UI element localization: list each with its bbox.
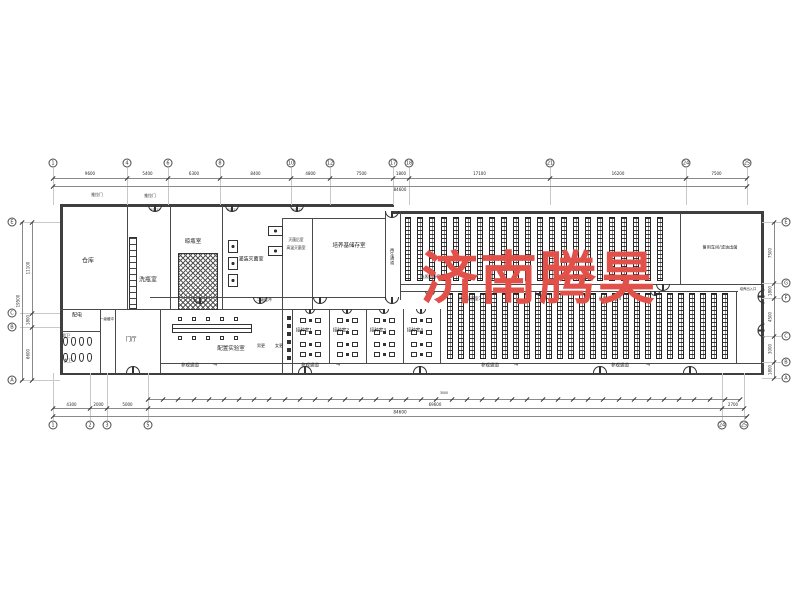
dimension-label: 2700 bbox=[728, 402, 738, 406]
room-label: 仓库 bbox=[82, 259, 94, 266]
arrow-icon: → bbox=[646, 363, 650, 369]
bench-symbol bbox=[315, 318, 321, 323]
wall bbox=[393, 211, 763, 214]
bench-symbol bbox=[192, 317, 196, 321]
equipment-symbol bbox=[228, 240, 238, 253]
storage-rack bbox=[700, 293, 706, 359]
bench-symbol bbox=[352, 342, 358, 347]
bench-symbol bbox=[411, 318, 417, 323]
bench-symbol bbox=[287, 348, 291, 352]
toilet-fixture bbox=[63, 337, 68, 346]
storage-rack bbox=[667, 293, 673, 359]
room-label: 灌装灭菌室 bbox=[238, 257, 263, 263]
room-label: 高温灭菌室 bbox=[287, 246, 306, 250]
wall bbox=[403, 309, 404, 363]
dimension-label: 9600 bbox=[85, 172, 95, 176]
grid-bubble: 1 bbox=[49, 421, 58, 430]
grid-bubble: 8 bbox=[216, 159, 225, 168]
bench-symbol bbox=[374, 342, 380, 347]
room-label: 推拉门 bbox=[144, 194, 155, 198]
door-leaf bbox=[133, 366, 140, 373]
bench-symbol bbox=[352, 318, 358, 323]
bench-symbol bbox=[206, 317, 210, 321]
door-leaf bbox=[313, 297, 320, 304]
bench-symbol bbox=[389, 352, 395, 357]
room-label: 接种室4 bbox=[407, 330, 423, 335]
bench-symbol bbox=[178, 336, 182, 340]
floor-plan-canvas: 14681012171821242512352425ECBAEGFCBA9600… bbox=[0, 0, 800, 600]
bench-symbol bbox=[315, 352, 321, 357]
arrow-icon: → bbox=[514, 363, 518, 369]
dimension-label: 69600 bbox=[429, 402, 442, 406]
dimension-label: 4500 bbox=[768, 312, 773, 322]
bench-symbol bbox=[346, 353, 349, 356]
toilet-fixture bbox=[87, 337, 92, 346]
door-leaf bbox=[385, 211, 392, 218]
bench-symbol bbox=[337, 342, 343, 347]
grid-bubble: 6 bbox=[164, 159, 173, 168]
bench-symbol bbox=[315, 330, 321, 335]
equipment-symbol bbox=[228, 257, 238, 270]
bench-symbol bbox=[420, 353, 423, 356]
wall bbox=[160, 363, 761, 364]
dimension-label: 1800 bbox=[26, 315, 31, 325]
bench-symbol bbox=[315, 342, 321, 347]
grid-bubble: 5 bbox=[144, 421, 153, 430]
storage-rack bbox=[722, 293, 728, 359]
arrow-icon: → bbox=[336, 363, 340, 369]
storage-rack bbox=[678, 293, 684, 359]
bench-symbol bbox=[337, 352, 343, 357]
door-leaf bbox=[758, 289, 765, 296]
door-leaf bbox=[663, 284, 670, 291]
dimension-tick bbox=[745, 414, 750, 419]
wall bbox=[60, 204, 63, 375]
room-label: 接种室3 bbox=[370, 330, 386, 335]
dimension-label: 5000 bbox=[122, 402, 132, 406]
door-leaf bbox=[392, 211, 399, 218]
toilet-fixture bbox=[87, 353, 92, 362]
room-label: 参观通道 bbox=[481, 365, 499, 370]
door-leaf bbox=[193, 297, 200, 304]
grid-line bbox=[744, 373, 745, 420]
bench-symbol bbox=[287, 316, 291, 320]
door-icon bbox=[758, 289, 765, 303]
dimension-label: 1800 bbox=[396, 172, 406, 176]
grid-bubble: 24 bbox=[682, 159, 691, 168]
wall bbox=[170, 206, 171, 310]
door-leaf bbox=[320, 297, 327, 304]
grid-bubble: 12 bbox=[326, 159, 335, 168]
grid-line bbox=[107, 373, 108, 420]
door-icon bbox=[126, 366, 140, 373]
grid-bubble: A bbox=[782, 374, 791, 383]
grid-line bbox=[90, 373, 91, 420]
grid-bubble: 4 bbox=[123, 159, 132, 168]
wall bbox=[115, 309, 116, 373]
door-icon bbox=[656, 284, 670, 291]
bench-symbol bbox=[346, 319, 349, 322]
door-leaf bbox=[420, 366, 427, 373]
toilet-fixture bbox=[79, 353, 84, 362]
bench-symbol bbox=[420, 343, 423, 346]
dimension-label: 4300 bbox=[66, 402, 76, 406]
bench-symbol bbox=[309, 343, 312, 346]
room-label: 女更 bbox=[275, 344, 283, 348]
room-label: 男卫 bbox=[62, 334, 70, 338]
room-label: 接种室2 bbox=[333, 330, 349, 335]
wall bbox=[366, 309, 367, 363]
door-leaf bbox=[126, 366, 133, 373]
bench-symbol bbox=[300, 352, 306, 357]
wall bbox=[385, 211, 386, 300]
grid-bubble: G bbox=[782, 279, 791, 288]
door-leaf bbox=[600, 366, 607, 373]
dimension-label: 1800 bbox=[768, 285, 773, 295]
bench-symbol bbox=[411, 352, 417, 357]
room-label: 一级缓冲 bbox=[100, 318, 114, 322]
door-leaf bbox=[385, 297, 392, 304]
door-leaf bbox=[347, 309, 352, 314]
bench-symbol bbox=[383, 353, 386, 356]
grid-bubble: E bbox=[782, 218, 791, 227]
grid-bubble: 1 bbox=[49, 159, 58, 168]
door-leaf bbox=[392, 297, 399, 304]
storage-rack bbox=[657, 217, 663, 281]
room-label: 女卫 bbox=[64, 359, 72, 363]
dimension-label: 84600 bbox=[393, 410, 406, 415]
dimension-label: 4800 bbox=[305, 172, 315, 176]
storage-rack bbox=[405, 217, 411, 281]
bench-symbol bbox=[287, 324, 291, 328]
bench-symbol bbox=[234, 336, 238, 340]
grid-bubble: F bbox=[782, 294, 791, 303]
room-label: 培养出入口 bbox=[740, 288, 756, 292]
storage-rack bbox=[689, 293, 695, 359]
dimension-label: 6300 bbox=[189, 172, 199, 176]
dimension-label: 17100 bbox=[473, 172, 486, 176]
bench-symbol bbox=[374, 318, 380, 323]
grid-bubble: B bbox=[8, 323, 17, 332]
grid-line bbox=[20, 327, 60, 328]
bench-symbol bbox=[426, 342, 432, 347]
dimension-line bbox=[32, 222, 33, 380]
door-icon bbox=[313, 297, 327, 304]
room-label: M1521 bbox=[150, 208, 160, 211]
room-label: 参观通道 bbox=[181, 365, 199, 370]
room-label: 培养基储存室 bbox=[332, 243, 365, 249]
floor-plan-page: 14681012171821242512352425ECBAEGFCBA9600… bbox=[0, 0, 800, 600]
dimension-label: 7500 bbox=[711, 172, 721, 176]
wall bbox=[400, 211, 401, 300]
grid-line bbox=[20, 313, 60, 314]
grid-bubble: A bbox=[8, 376, 17, 385]
door-icon bbox=[683, 366, 697, 373]
dimension-label: 19500 bbox=[16, 295, 21, 308]
bench-symbol bbox=[374, 352, 380, 357]
bench-symbol bbox=[346, 343, 349, 346]
door-leaf bbox=[758, 330, 765, 337]
door-leaf bbox=[656, 284, 663, 291]
bench-symbol bbox=[309, 353, 312, 356]
dimension-label: 11100 bbox=[26, 261, 31, 274]
door-leaf bbox=[200, 297, 207, 304]
wall bbox=[60, 373, 764, 376]
door-leaf bbox=[690, 366, 697, 373]
bench-symbol bbox=[192, 336, 196, 340]
wall bbox=[680, 213, 681, 284]
room-label: 晾瓶室 bbox=[185, 239, 202, 245]
equipment-symbol bbox=[228, 274, 238, 287]
equipment-symbol bbox=[268, 226, 283, 236]
door-icon bbox=[758, 323, 765, 337]
door-leaf bbox=[593, 366, 600, 373]
bench-symbol bbox=[352, 352, 358, 357]
bench-symbol bbox=[426, 330, 432, 335]
grid-line bbox=[20, 380, 60, 381]
grid-bubble: 3 bbox=[103, 421, 112, 430]
bench-symbol bbox=[206, 336, 210, 340]
room-label: 二级缓冲 bbox=[256, 298, 271, 302]
toilet-fixture bbox=[71, 337, 76, 346]
dimension-line bbox=[53, 178, 747, 179]
door-icon bbox=[193, 297, 207, 304]
grid-bubble: 25 bbox=[743, 159, 752, 168]
grid-bubble: B bbox=[782, 358, 791, 367]
grid-bubble: 25 bbox=[740, 421, 749, 430]
bench-symbol bbox=[426, 352, 432, 357]
bench-symbol bbox=[287, 356, 291, 360]
dimension-line bbox=[774, 222, 775, 378]
dimension-label: 3000 bbox=[440, 392, 448, 396]
bench-symbol bbox=[420, 319, 423, 322]
room-label: 备用车间/滤油出菌 bbox=[703, 246, 738, 251]
room-label: 推拉门 bbox=[91, 193, 102, 197]
toilet-fixture bbox=[79, 337, 84, 346]
bench-symbol bbox=[411, 342, 417, 347]
equipment-symbol bbox=[268, 246, 283, 256]
bench-symbol bbox=[220, 317, 224, 321]
grid-bubble: 18 bbox=[405, 159, 414, 168]
door-leaf bbox=[683, 366, 690, 373]
dimension-line bbox=[53, 416, 747, 417]
door-leaf bbox=[758, 323, 765, 330]
bench-symbol bbox=[287, 332, 291, 336]
room-label: M1521 bbox=[292, 208, 302, 211]
dimension-label: 1800 bbox=[768, 365, 773, 375]
room-label: 参观通道 bbox=[611, 365, 629, 370]
dimension-label: 7500 bbox=[768, 247, 773, 257]
room-label: 门厅 bbox=[125, 337, 136, 343]
bench-symbol bbox=[426, 318, 432, 323]
wall bbox=[127, 206, 128, 310]
door-leaf bbox=[310, 309, 315, 314]
dimension-line bbox=[22, 222, 23, 380]
wall bbox=[282, 218, 385, 219]
wall bbox=[222, 206, 223, 310]
bench-symbol bbox=[287, 340, 291, 344]
grid-bubble: 17 bbox=[389, 159, 398, 168]
door-leaf bbox=[413, 366, 420, 373]
room-label: 接种室1 bbox=[296, 330, 312, 335]
grid-bubble: C bbox=[8, 309, 17, 318]
bench-symbol bbox=[389, 318, 395, 323]
wall bbox=[736, 291, 737, 363]
grid-bubble: 21 bbox=[546, 159, 555, 168]
bench-symbol bbox=[389, 330, 395, 335]
room-label: M1521 bbox=[227, 208, 237, 211]
dimension-label: 7500 bbox=[356, 172, 366, 176]
bench-symbol bbox=[352, 330, 358, 335]
door-leaf bbox=[384, 309, 389, 314]
room-label: 再生通道 bbox=[390, 248, 394, 265]
bench-symbol bbox=[220, 336, 224, 340]
dimension-label: 5400 bbox=[142, 172, 152, 176]
wall bbox=[60, 309, 385, 310]
door-icon bbox=[379, 309, 389, 314]
dimension-label: 84600 bbox=[394, 188, 407, 192]
room-label: 配置实验室 bbox=[217, 346, 245, 352]
room-label: 参观通道 bbox=[301, 365, 319, 370]
door-icon bbox=[593, 366, 607, 373]
wall bbox=[440, 309, 441, 363]
bench-symbol bbox=[300, 342, 306, 347]
dimension-label: 6600 bbox=[26, 348, 31, 358]
grid-bubble: 10 bbox=[287, 159, 296, 168]
bench-symbol bbox=[300, 318, 306, 323]
dimension-label: 2000 bbox=[93, 402, 103, 406]
room-label: 配电 bbox=[72, 313, 82, 319]
room-label: 洗瓶室 bbox=[139, 278, 157, 285]
dimension-label: 16200 bbox=[612, 172, 625, 176]
door-icon bbox=[342, 309, 352, 314]
grid-line bbox=[722, 373, 723, 420]
storage-rack bbox=[711, 293, 717, 359]
door-icon bbox=[305, 309, 315, 314]
dimension-label: 3000 bbox=[768, 344, 773, 354]
watermark-text: 济南腾昊 bbox=[421, 247, 657, 313]
bench-symbol bbox=[172, 324, 252, 333]
grid-bubble: 2 bbox=[86, 421, 95, 430]
bench-symbol bbox=[383, 343, 386, 346]
grid-bubble: C bbox=[782, 332, 791, 341]
bench-symbol bbox=[178, 317, 182, 321]
door-icon bbox=[413, 366, 427, 373]
room-label: 男更 bbox=[257, 344, 265, 348]
dimension-label: 8400 bbox=[250, 172, 260, 176]
bench-symbol bbox=[389, 342, 395, 347]
drying-rack bbox=[129, 237, 137, 309]
bench-symbol bbox=[309, 319, 312, 322]
wall bbox=[329, 309, 330, 363]
door-icon bbox=[385, 297, 399, 304]
grid-line bbox=[20, 222, 60, 223]
room-label: 灭菌后室 bbox=[288, 238, 303, 242]
bench-symbol bbox=[337, 318, 343, 323]
bench-symbol bbox=[383, 319, 386, 322]
dimension-tick bbox=[738, 397, 743, 402]
arrow-icon: → bbox=[213, 363, 217, 369]
door-icon bbox=[385, 211, 399, 218]
grid-bubble: 24 bbox=[718, 421, 727, 430]
grid-bubble: E bbox=[8, 218, 17, 227]
bench-symbol bbox=[234, 317, 238, 321]
door-leaf bbox=[758, 296, 765, 303]
